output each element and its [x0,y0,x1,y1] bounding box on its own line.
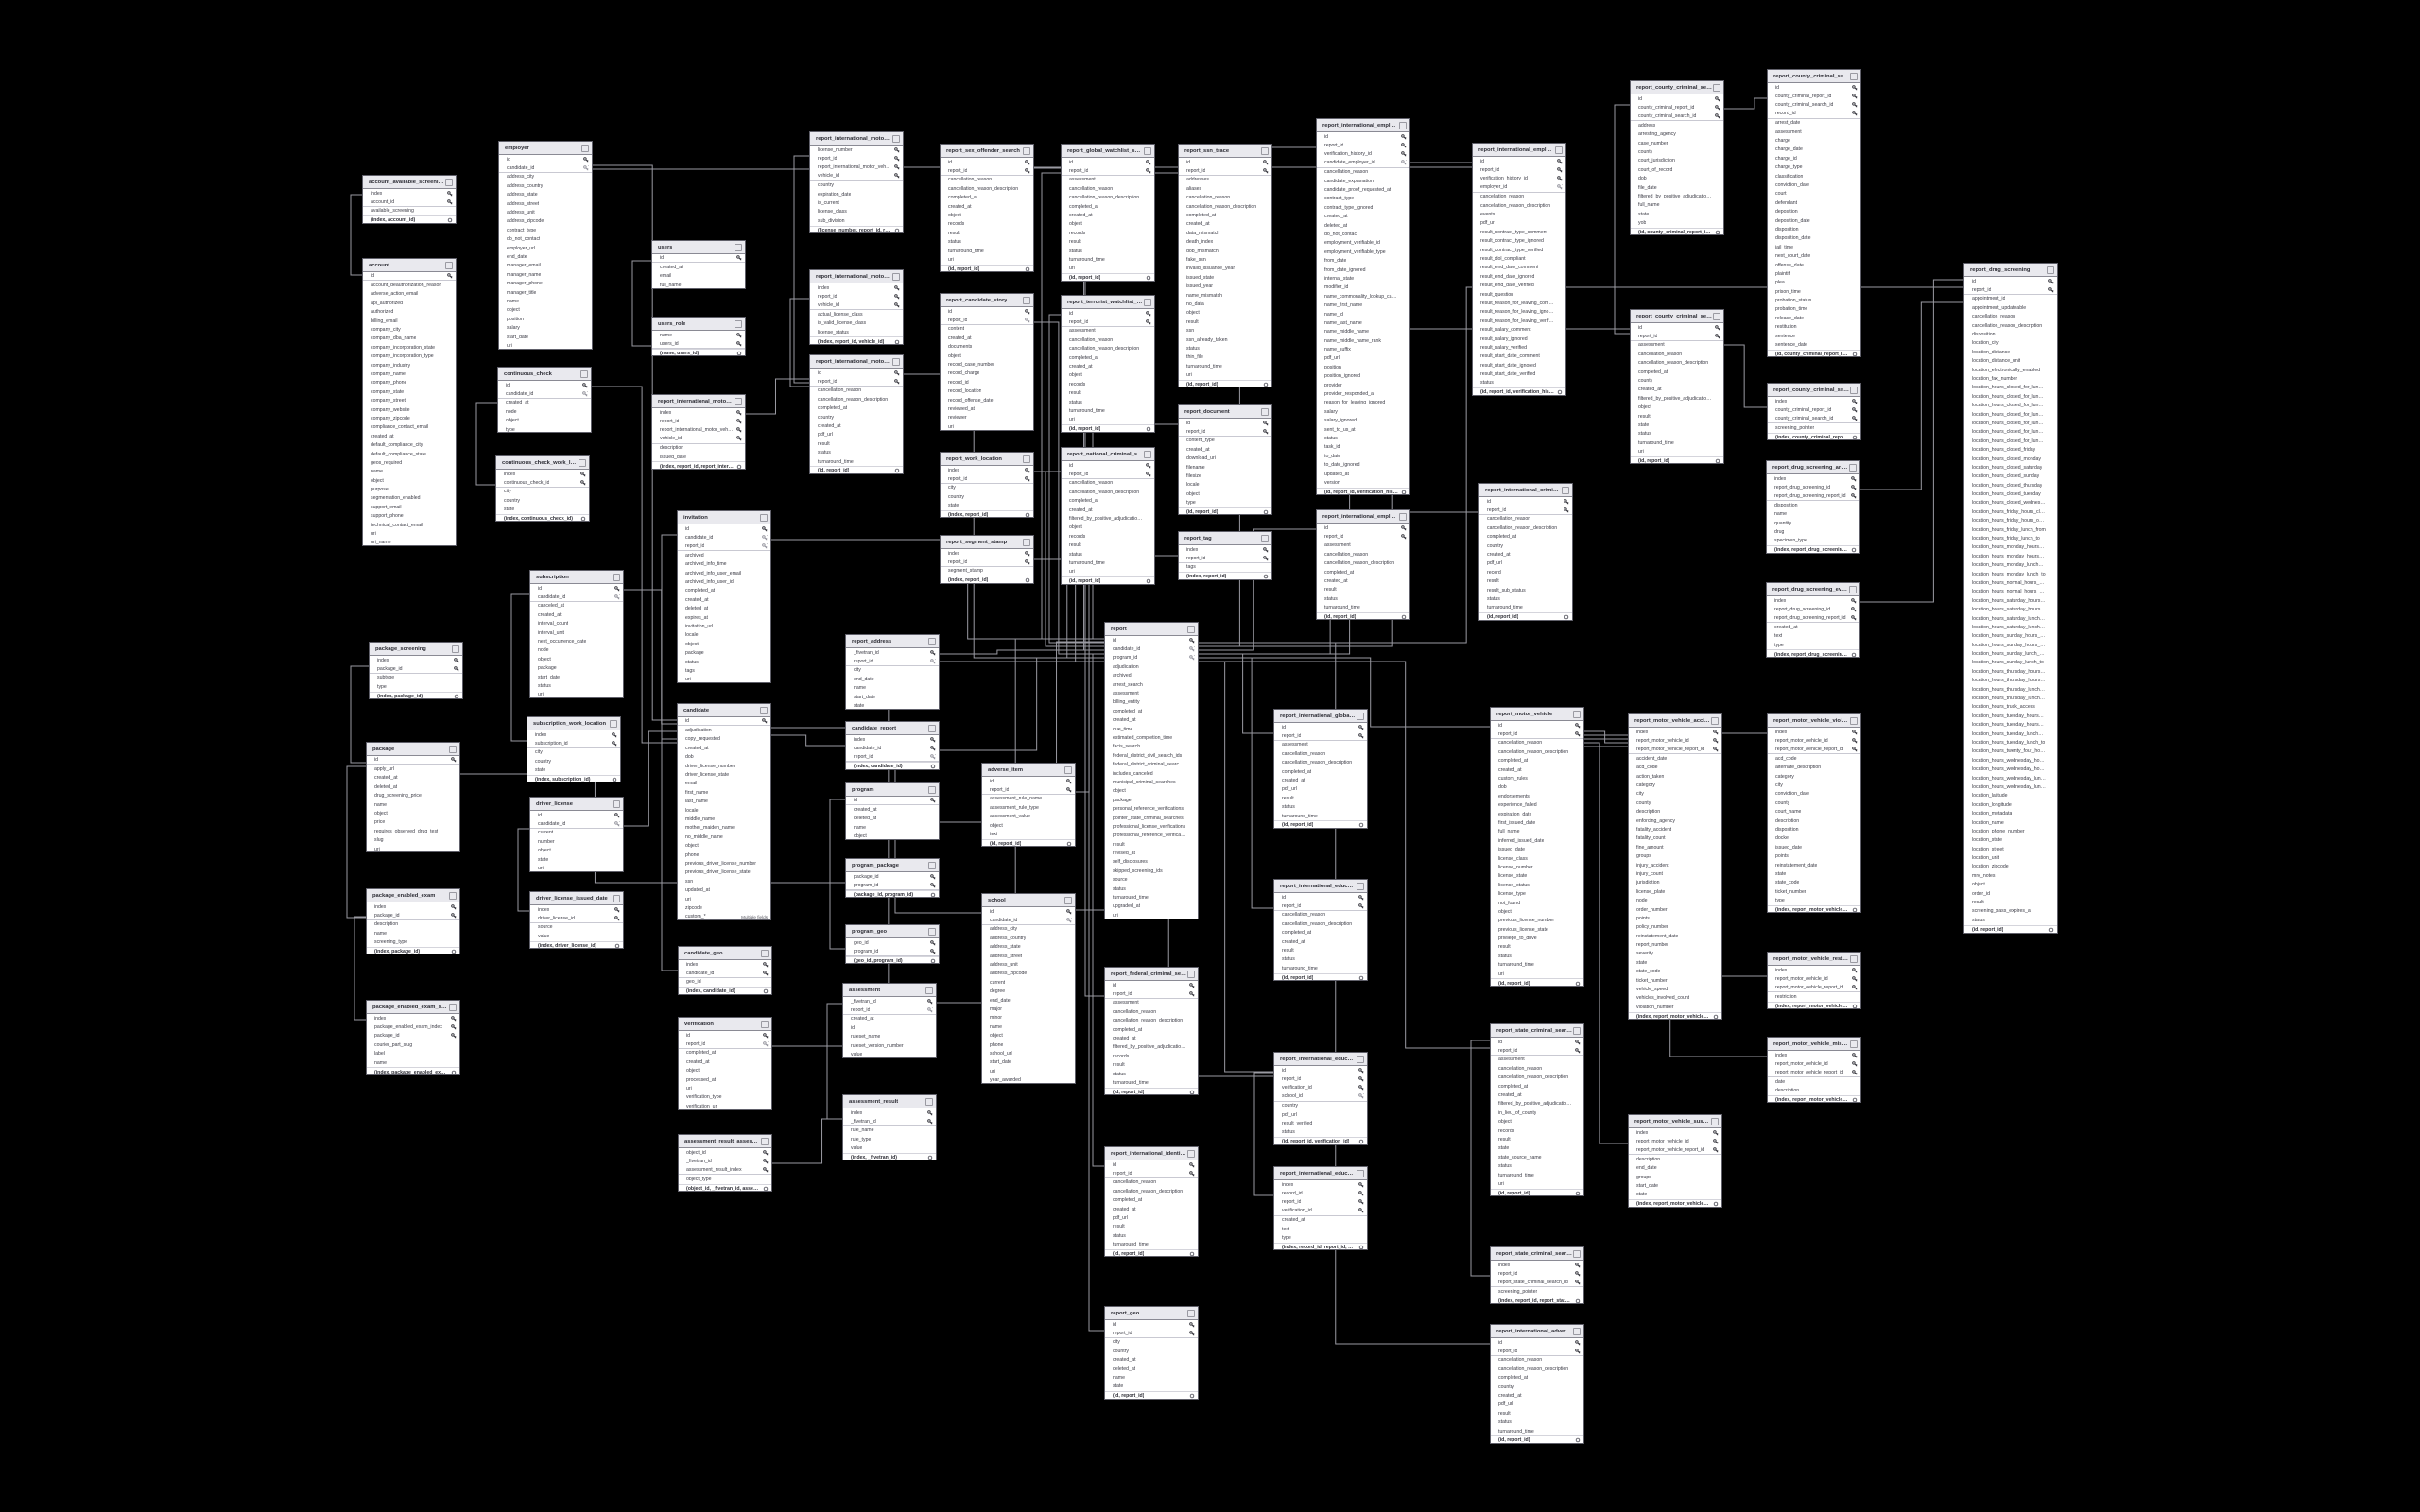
entity-school[interactable]: schoolidcandidate_idaddress_cityaddress_… [981,893,1076,1084]
entity-header[interactable]: continuous_check_work_location [496,456,589,470]
entity-header[interactable]: report_candidate_story [941,294,1033,307]
expand-icon[interactable] [928,928,936,936]
column-name: available_screening [371,208,414,214]
entity-header[interactable]: report_address [846,635,939,648]
entity-report_county_criminal_search_screening[interactable]: report_county_criminal_search_screen…ind… [1767,383,1861,440]
entity-report_motor_vehicle_violation[interactable]: report_motor_vehicle_violationindexrepor… [1767,713,1861,913]
column-row: location_hours_closed_tuesday [1964,490,2057,498]
column-name: phone [990,1042,1003,1048]
entity-candidate_report[interactable]: candidate_reportindexcandidate_idreport_… [845,721,940,770]
expand-icon[interactable] [892,135,900,143]
entity-report_federal_criminal_search[interactable]: report_federal_criminal_searchidreport_i… [1104,967,1199,1095]
column-row: year_awarded [982,1075,1075,1084]
entity-continuous_check_work_location[interactable]: continuous_check_work_locationindexconti… [495,455,590,522]
entity-header[interactable]: report_work_location [941,453,1033,466]
expand-icon[interactable] [1064,897,1072,904]
entity-report_tag[interactable]: report_tagindexreport_idtags(index, repo… [1178,531,1272,580]
column-row: object [367,809,459,817]
entity-header[interactable]: driver_license [530,798,623,811]
entity-header[interactable]: report_county_criminal_search_record [1631,81,1723,94]
column-row: report_id [941,558,1033,566]
column-name: current [538,830,553,835]
entity-title: continuous_check [504,371,552,377]
expand-icon[interactable] [1023,147,1030,155]
entity-header[interactable]: report_state_criminal_search_screenin… [1491,1247,1583,1261]
expand-icon[interactable] [1023,455,1030,463]
expand-icon[interactable] [613,895,620,902]
key-icon [1146,463,1151,469]
expand-icon[interactable] [580,370,588,378]
expand-icon[interactable] [613,800,620,808]
entity-header[interactable]: employer [499,142,592,155]
entity-report_international_motor_vehicle[interactable]: report_international_motor_vehicleidrepo… [809,354,904,474]
entity-title: report_international_motor_vehicle_li… [816,136,891,142]
expand-icon[interactable] [1144,451,1151,458]
column-row: value [843,1144,936,1153]
er-diagram-canvas[interactable]: account_available_screeningindexaccount_… [0,0,2420,1512]
expand-icon[interactable] [1023,539,1030,546]
entity-header[interactable]: report_international_identity_documen… [1105,1147,1198,1160]
entity-header[interactable]: report_drug_screening_analyte [1767,461,1859,474]
entity-continuous_check[interactable]: continuous_checkidcandidate_idcreated_at… [497,367,592,433]
entity-header[interactable]: assessment_result [843,1095,936,1108]
entity-report_motor_vehicle_restriction[interactable]: report_motor_vehicle_restrictionindexrep… [1767,952,1861,1009]
column-name: file_date [1638,185,1657,191]
entity-header[interactable]: report_ssn_trace [1179,145,1271,158]
column-name: id [1282,895,1286,901]
entity-header[interactable]: adverse_item [982,764,1075,777]
entity-program_package[interactable]: program_packagepackage_idprogram_id(pack… [845,858,940,898]
column-row: previous_license_number [1491,917,1583,925]
expand-icon[interactable] [1187,1310,1195,1317]
expand-icon[interactable] [452,645,459,653]
entity-header[interactable]: report_county_criminal_search_record… [1768,70,1860,83]
gear-icon [763,1186,769,1192]
entity-program_geo[interactable]: program_geogeo_idprogram_id(geo_id, prog… [845,924,940,964]
expand-icon[interactable] [1713,84,1720,92]
column-row: (license_number, report_id, report_inte… [810,226,903,234]
expand-icon[interactable] [1357,713,1364,720]
entity-report_sex_offender_search[interactable]: report_sex_offender_searchidreport_idcan… [940,144,1034,272]
expand-icon[interactable] [761,1021,769,1028]
entity-header[interactable]: verification [679,1018,771,1031]
expand-icon[interactable] [449,892,457,900]
column-name: state [1636,960,1647,966]
entity-report_international_education_verification[interactable]: report_international_education_verific…i… [1273,879,1368,981]
column-row: report_drug_screening_report_id [1767,614,1859,623]
column-row: current [530,829,623,837]
entity-header[interactable]: subscription_work_location [527,717,620,730]
entity-employer[interactable]: employeridcandidate_idaddress_cityaddres… [498,141,593,350]
expand-icon[interactable] [1187,626,1195,633]
expand-icon[interactable] [1261,147,1269,155]
expand-icon[interactable] [735,398,742,405]
column-row: company_website [363,405,456,414]
entity-report_county_criminal_search[interactable]: report_county_criminal_searchidreport_id… [1630,309,1724,464]
relationship-line [794,156,809,383]
column-row: probation_status [1768,296,1860,304]
expand-icon[interactable] [925,987,933,994]
entity-header[interactable]: candidate_geo [679,947,771,960]
expand-icon[interactable] [445,262,453,269]
entity-report[interactable]: reportidcandidate_idprogram_idadjudicati… [1104,622,1199,919]
column-name: package [685,650,704,656]
expand-icon[interactable] [2047,266,2054,274]
key-icon [1025,468,1030,473]
column-name: self_disclosures [1113,859,1148,865]
column-name: full_name [660,283,682,288]
entity-assessment_result_assessed_object[interactable]: assessment_result_assessed_objectobject_… [678,1134,772,1192]
expand-icon[interactable] [1555,146,1563,154]
column-name: id [374,757,378,763]
entity-package_enabled_exam[interactable]: package_enabled_examindexpackage_iddescr… [366,888,460,954]
expand-icon[interactable] [892,358,900,366]
column-name: professional_license_verifications [1113,824,1185,830]
expand-icon[interactable] [1144,299,1151,306]
expand-icon[interactable] [1064,766,1072,774]
entity-header[interactable]: report_national_criminal_search [1062,448,1154,461]
expand-icon[interactable] [735,244,742,251]
entity-header[interactable]: assessment_result_assessed_object [679,1135,771,1148]
column-name: location_hours_closed_wednesday [1972,500,2046,506]
expand-icon[interactable] [925,1098,933,1106]
expand-icon[interactable] [1357,1170,1364,1177]
entity-header[interactable]: report_geo [1105,1307,1198,1320]
column-name: location_hours_thursday_hours_close [1972,669,2046,675]
entity-report_document[interactable]: report_documentidreport_idcontent_typecr… [1178,404,1272,515]
entity-report_ssn_trace[interactable]: report_ssn_traceidreport_idaddressesalia… [1178,144,1272,387]
entity-header[interactable]: report_international_education_verific… [1274,880,1367,893]
entity-report_international_adverse_media_search[interactable]: report_international_adverse_media_s…idr… [1490,1324,1584,1444]
column-row: position_ignored [1317,372,1409,381]
entity-candidate[interactable]: candidateidadjudicationcopy_requestedcre… [677,703,771,920]
entity-header[interactable]: report_motor_vehicle_restriction [1768,953,1860,966]
gear-icon [736,351,742,356]
entity-account_available_screening[interactable]: account_available_screeningindexaccount_… [362,175,457,224]
column-name: object [1498,909,1512,915]
column-name: name_middle_name [1324,329,1369,335]
entity-header[interactable]: program_package [846,859,939,872]
expand-icon[interactable] [1023,297,1030,304]
entity-header[interactable]: report_motor_vehicle_miscellaneous_i… [1768,1038,1860,1051]
column-row: (id, report_id) [1317,612,1409,621]
entity-report_segment_stamp[interactable]: report_segment_stampindexreport_idsegmen… [940,535,1034,584]
entity-header[interactable]: report_motor_vehicle_suspension [1629,1115,1721,1128]
column-row: result_end_date_verified [1473,281,1565,289]
entity-header[interactable]: report_federal_criminal_search [1105,968,1198,981]
entity-header[interactable]: report_tag [1179,532,1271,545]
expand-icon[interactable] [1850,387,1858,394]
entity-header[interactable]: report_international_global_watchlist_… [1274,710,1367,723]
entity-driver_license[interactable]: driver_licenseidcandidate_idcurrentnumbe… [529,797,624,872]
entity-report_drug_screening[interactable]: report_drug_screeningidreport_idappointm… [1963,263,2058,934]
entity-report_international_identity_document[interactable]: report_international_identity_documen…id… [1104,1146,1199,1257]
column-row: created_at [367,774,459,782]
entity-users[interactable]: usersidcreated_atemailfull_name [651,240,746,289]
column-row: location_hours_thursday_lunch_from [1964,685,2057,694]
entity-header[interactable]: report_international_employment_veri… [1473,144,1565,157]
column-row: self_disclosures [1105,858,1198,867]
entity-header[interactable]: report_sex_offender_search [941,145,1033,158]
entity-header[interactable]: report_international_motor_vehicle_li… [652,395,745,408]
expand-icon[interactable] [760,514,768,522]
entity-report_address[interactable]: report_address_fivetran_idreport_idcitye… [845,634,940,710]
column-row: issued_state [1179,273,1271,282]
expand-icon[interactable] [761,1138,769,1145]
column-row: result_start_date_verified [1473,369,1565,378]
expand-icon[interactable] [1187,1150,1195,1158]
column-row: injury_count [1629,869,1721,878]
expand-icon[interactable] [1850,1040,1858,1048]
entity-header[interactable]: candidate_report [846,722,939,735]
entity-header[interactable]: program_geo [846,925,939,938]
entity-header[interactable]: report_international_education_verific… [1274,1053,1367,1066]
column-name: index [1775,730,1787,735]
entity-header[interactable]: package_enabled_exam [367,889,459,902]
relationship-line [1076,643,1104,792]
column-row: address_state [499,191,592,199]
entity-header[interactable]: candidate [678,704,770,717]
column-row: location_hours_saturday_hours_open [1964,605,2057,613]
expand-icon[interactable] [760,707,768,714]
expand-icon[interactable] [1573,1328,1581,1335]
expand-icon[interactable] [928,862,936,869]
expand-icon[interactable] [1850,73,1858,80]
column-row: upgraded_at [1105,902,1198,911]
expand-icon[interactable] [1573,1250,1581,1258]
entity-header[interactable]: report_motor_vehicle_violation [1768,714,1860,728]
entity-header[interactable]: school [982,894,1075,907]
entity-report_national_criminal_search[interactable]: report_national_criminal_searchidreport_… [1061,447,1155,585]
entity-report_motor_vehicle_suspension[interactable]: report_motor_vehicle_suspensionindexrepo… [1628,1114,1722,1208]
entity-header[interactable]: report_document [1179,405,1271,419]
entity-header[interactable]: report_county_criminal_search [1631,310,1723,323]
entity-header[interactable]: report_international_adverse_media_s… [1491,1325,1583,1338]
entity-header[interactable]: report_international_education_verific… [1274,1167,1367,1180]
column-name: object_id [686,1150,706,1156]
entity-header[interactable]: driver_license_issued_date [530,892,623,905]
entity-report_motor_vehicle_miscellaneous[interactable]: report_motor_vehicle_miscellaneous_i…ind… [1767,1037,1861,1103]
expand-icon[interactable] [761,950,769,957]
expand-icon[interactable] [1261,535,1269,542]
entity-header[interactable]: continuous_check [498,368,591,381]
entity-report_drug_screening_event[interactable]: report_drug_screening_eventindexreport_d… [1766,582,1860,658]
expand-icon[interactable] [1399,122,1407,129]
expand-icon[interactable] [579,459,586,467]
entity-header[interactable]: report_county_criminal_search_screen… [1768,384,1860,397]
column-name: location_state [1972,837,2002,843]
entity-header[interactable]: report_motor_vehicle_accident [1629,714,1721,728]
expand-icon[interactable] [1573,1027,1581,1035]
entity-users_role[interactable]: users_rolenameusers_id(name, users_id) [651,317,746,356]
entity-package[interactable]: packageidapply_urlcreated_atdeleted_atdr… [366,742,460,852]
expand-icon[interactable] [1357,883,1364,890]
column-row: fatality_accident [1629,825,1721,833]
entity-header[interactable]: report_drug_screening_event [1767,583,1859,596]
column-name: zipcode [685,905,702,911]
entity-report_candidate_story[interactable]: report_candidate_storyidreport_idcontent… [940,293,1034,431]
column-row: report_id [678,542,770,551]
column-name: type [1186,500,1196,506]
column-row: result [1105,1061,1198,1070]
column-row: record_offense_date [941,396,1033,404]
entity-subscription[interactable]: subscriptionidcandidate_idcanceled_atcre… [529,570,624,698]
column-name: charge_type [1775,164,1803,170]
entity-header[interactable]: report_motor_vehicle [1491,708,1583,721]
column-row: drug [1767,527,1859,536]
entity-title: report_work_location [946,456,1002,462]
entity-report_international_global_watchlist_search[interactable]: report_international_global_watchlist_…i… [1273,709,1368,829]
entity-header[interactable]: report_international_employment_veri… [1317,510,1409,524]
entity-report_motor_vehicle_accident[interactable]: report_motor_vehicle_accidentindexreport… [1628,713,1722,1020]
entity-report_work_location[interactable]: report_work_locationindexreport_idcityco… [940,452,1034,518]
expand-icon[interactable] [735,320,742,328]
entity-header[interactable]: invitation [678,511,770,524]
expand-icon[interactable] [1849,464,1857,472]
entity-header[interactable]: report_international_motor_vehicle_li… [810,270,903,283]
entity-header[interactable]: report_international_employment_veri… [1317,119,1409,132]
column-name: result [1069,542,1081,548]
column-name: ssn [685,879,693,885]
entity-header[interactable]: report_international_motor_vehicle [810,355,903,369]
column-row: uri [1491,1179,1583,1188]
entity-verification[interactable]: verificationidreport_idcompleted_atcreat… [678,1017,772,1110]
key-icon [763,1033,769,1039]
entity-report_international_education_verification_3[interactable]: report_international_education_verific…i… [1273,1166,1368,1250]
entity-header[interactable]: report_international_motor_vehicle_li… [810,132,903,146]
column-name: report_state_criminal_search_id [1498,1280,1568,1285]
entity-package_screening[interactable]: package_screeningindexpackage_idsubtypet… [369,642,463,699]
column-row: records [1105,1052,1198,1060]
entity-report_drug_screening_analyte[interactable]: report_drug_screening_analyteindexreport… [1766,460,1860,554]
entity-header[interactable]: report [1105,623,1198,636]
entity-program[interactable]: programidcreated_atdeleted_atnameobject [845,782,940,840]
entity-header[interactable]: account_available_screening [363,176,456,189]
expand-icon[interactable] [928,786,936,794]
column-name: address_state [507,192,538,198]
column-row: email [652,272,745,281]
entity-invitation[interactable]: invitationidcandidate_idreport_idarchive… [677,510,771,683]
entity-assessment[interactable]: assessment_fivetran_idreport_idcreated_a… [842,983,937,1058]
entity-report_state_criminal_search[interactable]: report_state_criminal_searchidreport_ida… [1490,1023,1584,1196]
entity-header[interactable]: program [846,783,939,797]
expand-icon[interactable] [445,179,453,186]
entity-report_international_employment_verification_2[interactable]: report_international_employment_veri…idr… [1316,509,1410,620]
expand-icon[interactable] [1849,586,1857,593]
expand-icon[interactable] [892,273,900,281]
column-row: report_id [679,1039,771,1048]
relationship-line [1724,98,1767,109]
entity-report_global_watchlist_search[interactable]: report_global_watchlist_searchidreport_i… [1061,144,1155,282]
column-name: id [1282,1068,1286,1074]
column-name: assessment [1324,542,1351,548]
entity-adverse_item[interactable]: adverse_itemidreport_idassessment_rule_n… [981,763,1076,847]
expand-icon[interactable] [1713,313,1720,320]
column-row: location_hours_closed_monday [1964,455,2057,463]
expand-icon[interactable] [928,725,936,732]
expand-icon[interactable] [1399,513,1407,521]
key-icon [1146,160,1151,165]
expand-icon[interactable] [1573,711,1581,718]
entity-rimv_license_issue[interactable]: report_international_motor_vehicle_li…in… [651,394,746,470]
entity-report_geo[interactable]: report_geoidreport_idcitycountrycreated_… [1104,1306,1199,1400]
expand-icon[interactable] [1187,971,1195,978]
entity-header[interactable]: report_terrorist_watchlist_search [1062,296,1154,309]
expand-icon[interactable] [610,720,617,728]
key-icon [1713,1139,1719,1144]
expand-icon[interactable] [1711,1118,1719,1125]
column-name: text [1282,1227,1289,1232]
column-row: name [367,1058,459,1067]
column-row: object [1491,1118,1583,1126]
gear-icon [1713,1201,1719,1207]
entity-header[interactable]: package [367,743,459,756]
entity-header[interactable]: package_enabled_exam_service [367,1001,459,1014]
expand-icon[interactable] [449,1004,457,1011]
column-name: object [948,353,961,359]
column-row: (id, report_id) [1274,973,1367,982]
entity-report_motor_vehicle[interactable]: report_motor_vehicleidreport_idcancellat… [1490,707,1584,987]
expand-icon[interactable] [613,574,620,581]
expand-icon[interactable] [1711,717,1719,725]
entity-package_enabled_exam_service[interactable]: package_enabled_exam_serviceindexpackage… [366,1000,460,1075]
entity-rimv_license[interactable]: report_international_motor_vehicle_li…li… [809,131,904,233]
entity-report_international_employment_verification_3[interactable]: report_international_employment_veri…idr… [1472,143,1566,396]
expand-icon[interactable] [581,145,589,152]
expand-icon[interactable] [928,638,936,645]
expand-icon[interactable] [1144,147,1151,155]
column-row: records [941,220,1033,229]
entity-assessment_result[interactable]: assessment_resultindex_fivetran_idrule_n… [842,1094,937,1160]
entity-report_county_criminal_search_record_2[interactable]: report_county_criminal_search_record…idc… [1767,69,1861,357]
column-row: custom_rules [1491,774,1583,782]
entity-report_county_criminal_search_record[interactable]: report_county_criminal_search_recordidco… [1630,80,1724,235]
expand-icon[interactable] [1850,717,1858,725]
entity-header[interactable]: report_drug_screening [1964,264,2057,277]
entity-header[interactable]: report_global_watchlist_search [1062,145,1154,158]
entity-report_international_education_verification_2[interactable]: report_international_education_verific…i… [1273,1052,1368,1145]
entity-report_international_employment_verification[interactable]: report_international_employment_veri…idr… [1316,118,1410,495]
entity-report_state_criminal_search_screening[interactable]: report_state_criminal_search_screenin…in… [1490,1246,1584,1304]
entity-header[interactable]: report_state_criminal_search [1491,1024,1583,1038]
expand-icon[interactable] [1562,487,1569,494]
entity-header[interactable]: users [652,241,745,254]
entity-driver_license_issued_date[interactable]: driver_license_issued_dateindexdriver_li… [529,891,624,949]
entity-header[interactable]: package_screening [370,643,462,656]
entity-header[interactable]: account [363,259,456,272]
entity-report_terrorist_watchlist_search[interactable]: report_terrorist_watchlist_searchidrepor… [1061,295,1155,433]
expand-icon[interactable] [1357,1056,1364,1063]
entity-report_international_criminal_search[interactable]: report_international_criminal_searchidre… [1478,483,1573,621]
key-icon [736,436,742,441]
entity-subscription_work_location[interactable]: subscription_work_locationindexsubscript… [527,716,621,782]
column-name: disposition [1774,503,1798,508]
entity-account[interactable]: accountidaccount_deauthorization_reasona… [362,258,457,546]
column-name: report_id [948,318,967,323]
expand-icon[interactable] [449,746,457,753]
entity-header[interactable]: assessment [843,984,936,997]
entity-rimv_license_class[interactable]: report_international_motor_vehicle_li…in… [809,269,904,345]
entity-header[interactable]: report_segment_stamp [941,536,1033,549]
expand-icon[interactable] [1850,955,1858,963]
entity-header[interactable]: subscription [530,571,623,584]
column-name: uri [538,866,544,871]
entity-header[interactable]: users_role [652,318,745,331]
entity-header[interactable]: report_international_criminal_search [1479,484,1572,497]
column-name: screening_pass_expires_at [1972,908,2031,914]
expand-icon[interactable] [1261,408,1269,416]
entity-candidate_geo[interactable]: candidate_geoindexcandidate_idgeo_id(ind… [678,946,772,995]
